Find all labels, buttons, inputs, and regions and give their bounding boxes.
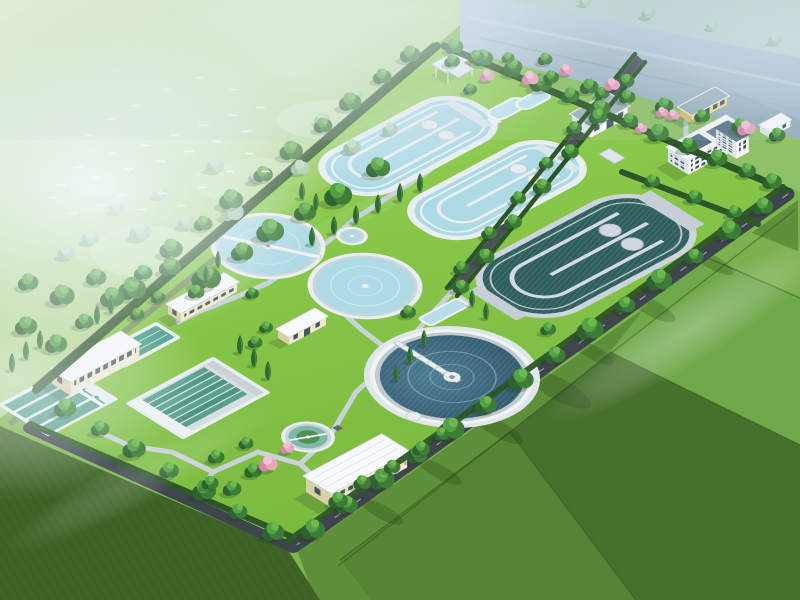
- treatment-plant-rendering: [0, 0, 800, 600]
- rendering-canvas: [0, 0, 800, 600]
